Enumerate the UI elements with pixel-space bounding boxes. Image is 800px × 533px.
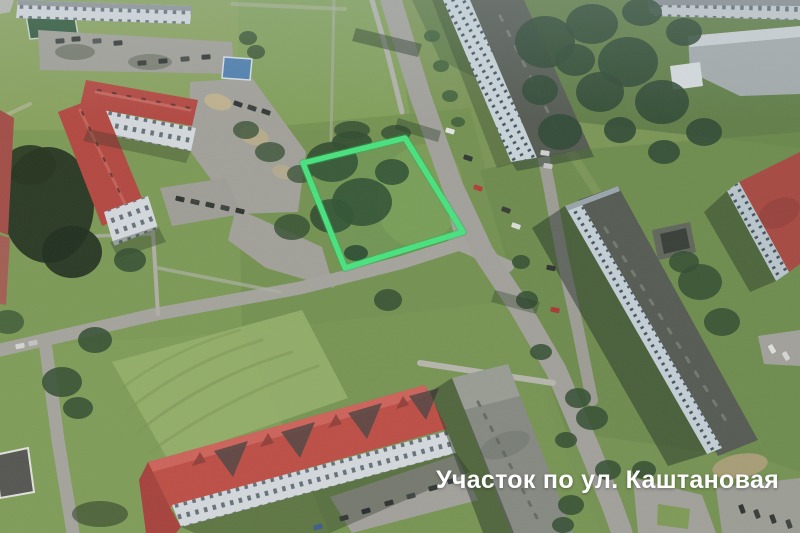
annotation-overlay <box>0 0 800 533</box>
aerial-photo: Участок по ул. Каштановая <box>0 0 800 533</box>
plot-boundary <box>303 138 463 268</box>
street-caption: Участок по ул. Каштановая <box>436 466 779 495</box>
